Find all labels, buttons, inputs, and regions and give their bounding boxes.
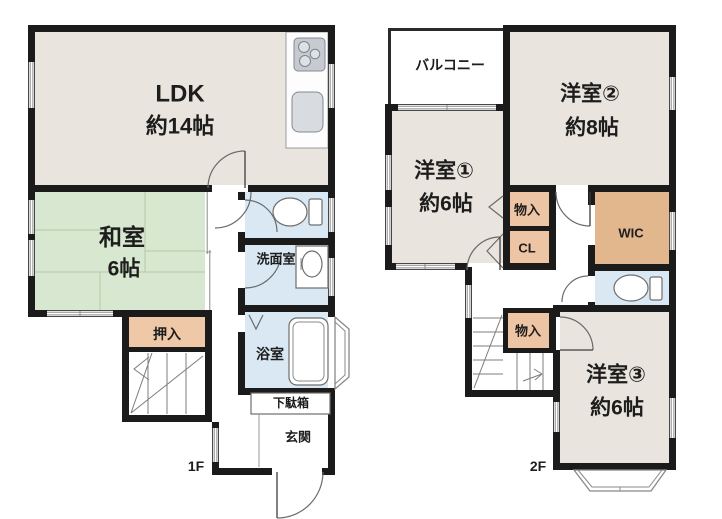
room-label-getabako: 下駄箱 bbox=[273, 395, 309, 410]
room-yoshitsu2 bbox=[510, 32, 669, 185]
room-ldk bbox=[35, 32, 328, 185]
room-label-closet: CL bbox=[518, 241, 535, 256]
kitchen-counter bbox=[286, 32, 328, 148]
floor-2f: バルコニー 洋室① 約6帖 洋室② 約8帖 洋室③ 約6帖 物入 CL WIC … bbox=[385, 25, 676, 491]
room-size-yoshitsu1: 約6帖 bbox=[419, 192, 473, 216]
room-label-monoire-stairs: 物入 bbox=[515, 324, 541, 339]
room-label-yokushitsu: 浴室 bbox=[256, 346, 284, 362]
room-size-washitsu: 6帖 bbox=[108, 258, 141, 281]
sliding-door-washitsu bbox=[206, 192, 211, 310]
room-label-yoshitsu3: 洋室③ bbox=[586, 363, 646, 387]
stove-icon bbox=[294, 38, 325, 71]
room-label-wic: WIC bbox=[618, 226, 644, 241]
bay-window-yoshitsu3 bbox=[574, 470, 666, 491]
room-size-yoshitsu2: 約8帖 bbox=[565, 116, 619, 140]
room-label-oshiire: 押入 bbox=[153, 326, 181, 342]
front-door-arc bbox=[277, 472, 323, 518]
floor-label-1f: 1F bbox=[188, 458, 205, 474]
room-label-senmenshitsu: 洗面室 bbox=[256, 252, 295, 267]
bay-window-bath bbox=[335, 317, 349, 389]
room-label-yoshitsu1: 洋室① bbox=[414, 159, 474, 183]
room-label-yoshitsu2: 洋室② bbox=[560, 82, 620, 106]
room-size-yoshitsu3: 約6帖 bbox=[590, 396, 644, 420]
stairs-1f bbox=[131, 353, 203, 414]
bathtub-icon bbox=[289, 318, 328, 385]
room-yoshitsu3 bbox=[560, 312, 669, 463]
toilet-icon-2f bbox=[614, 275, 662, 301]
room-size-ldk: 約14帖 bbox=[146, 114, 214, 139]
kitchen-sink-icon bbox=[292, 92, 323, 132]
room-label-washitsu: 和室 bbox=[99, 224, 145, 250]
washbasin-icon bbox=[296, 246, 328, 288]
floor-label-2f: 2F bbox=[530, 458, 547, 474]
floor-plan: LDK 約14帖 和室 6帖 押入 洗面室 浴室 下駄箱 玄関 1F bbox=[0, 0, 722, 519]
floor-plan-drawing: LDK 約14帖 和室 6帖 押入 洗面室 浴室 下駄箱 玄関 1F bbox=[0, 0, 722, 519]
floor-1f: LDK 約14帖 和室 6帖 押入 洗面室 浴室 下駄箱 玄関 1F bbox=[28, 25, 349, 518]
room-label-monoire-upper: 物入 bbox=[514, 203, 540, 218]
toilet-icon-1f bbox=[273, 198, 322, 226]
room-label-ldk: LDK bbox=[155, 81, 205, 108]
room-label-genkan: 玄関 bbox=[285, 430, 311, 445]
room-label-balcony: バルコニー bbox=[415, 57, 485, 73]
